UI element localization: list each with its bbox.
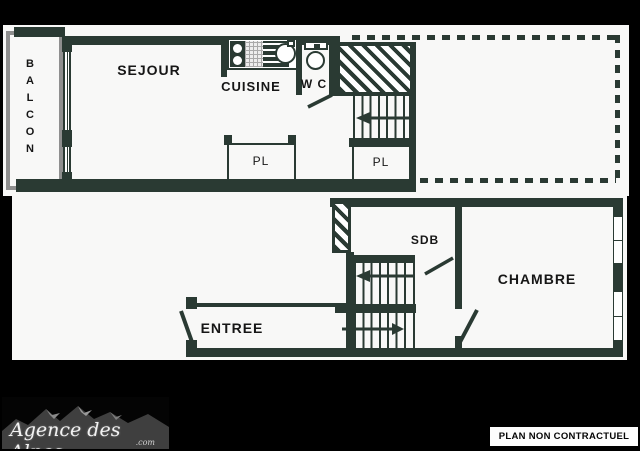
wall-chambre-left — [455, 202, 462, 309]
terrace-dashed-right — [615, 35, 620, 183]
wall-stair-left-lower — [346, 252, 354, 348]
room-label-sejour: SEJOUR — [99, 62, 199, 78]
terrace-dashed-bottom — [420, 178, 616, 183]
chambre-window-icon — [614, 215, 622, 265]
floor-plan: BALCON SEJOUR CUISINE W C PL PL SDB CHAM… — [0, 0, 640, 451]
room-label-wc: W C — [294, 77, 334, 91]
toilet-tank-icon — [304, 41, 328, 50]
stairs-upper — [353, 96, 410, 138]
room-label-pl-left: PL — [241, 154, 281, 168]
room-label-entree: ENTREE — [182, 320, 282, 336]
closet-left-post-b — [288, 135, 296, 145]
room-label-pl-right: PL — [361, 155, 401, 169]
toilet-bowl-icon — [306, 51, 325, 70]
stairs-lower-entry-run — [354, 313, 412, 348]
chambre-door-post — [455, 336, 462, 348]
terrace-dashed-top — [352, 35, 620, 40]
balcony-window2-icon — [63, 147, 71, 172]
wall-stair-right-line — [413, 263, 415, 348]
stairs-lower-upper-run — [354, 263, 412, 304]
wall-bottom-upper — [16, 179, 416, 192]
wall-top-lower — [330, 198, 623, 207]
stove-icon — [230, 41, 245, 67]
drainer-grid-icon — [245, 41, 263, 67]
wall-stair-mid-bar — [335, 304, 416, 313]
closet-left-post-a — [224, 135, 232, 145]
void-hatch-upper — [336, 42, 414, 96]
chambre-window2-icon — [614, 290, 622, 342]
void-hatch-lower — [332, 201, 351, 253]
room-label-chambre: CHAMBRE — [477, 271, 597, 287]
wall-balcony-cap — [14, 27, 65, 37]
agency-domain: .com — [136, 438, 155, 447]
room-label-sdb: SDB — [400, 233, 450, 247]
wall-entree-top — [191, 303, 347, 307]
agency-logo: Agence des Alpes .com — [2, 397, 169, 449]
wall-bottom-lower — [186, 348, 623, 357]
wall-stair-top-bar-lower — [349, 255, 415, 263]
balcony-window-icon — [63, 52, 71, 130]
disclaimer-box: PLAN NON CONTRACTUEL — [489, 426, 639, 447]
wall-balcony-mullion — [62, 130, 72, 147]
disclaimer-text: PLAN NON CONTRACTUEL — [499, 431, 630, 442]
entree-post-top — [186, 297, 197, 309]
wall-stair-landing-bar — [349, 138, 416, 147]
room-label-balcon: BALCON — [24, 58, 36, 158]
tap-icon — [287, 40, 295, 47]
room-label-cuisine: CUISINE — [211, 79, 291, 94]
